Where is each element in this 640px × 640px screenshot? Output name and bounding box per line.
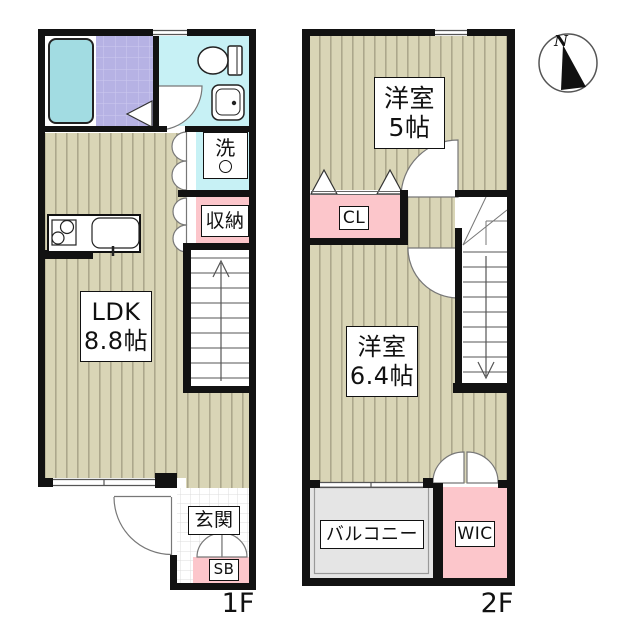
kitchen-sink-icon	[92, 218, 139, 248]
label-wic: WIC	[455, 521, 495, 547]
ldk-size: 8.8帖	[84, 327, 148, 355]
label-storage: 収納	[201, 205, 249, 237]
label-closet: CL	[339, 206, 369, 230]
compass-north-label: N	[548, 31, 574, 51]
staircase-2f	[463, 197, 507, 378]
bedroom5-name: 洋室	[384, 84, 435, 114]
floor2-label: 2F	[476, 587, 518, 619]
label-entrance: 玄関	[188, 506, 240, 535]
label-ldk: LDK 8.8帖	[80, 291, 152, 362]
bedroom64-name: 洋室	[358, 333, 407, 361]
bathtub-icon	[49, 39, 93, 123]
hall-floor	[408, 197, 455, 247]
bedroom64-size: 6.4帖	[350, 362, 414, 390]
floor1-label: 1F	[217, 587, 259, 619]
bedroom5-size: 5帖	[389, 113, 431, 143]
washer-circle-icon	[219, 160, 232, 173]
label-bedroom5: 洋室 5帖	[374, 77, 445, 149]
staircase-1f	[191, 258, 249, 381]
ldk-name: LDK	[91, 298, 140, 326]
ldk-floor-lower	[186, 393, 249, 488]
toilet-tank-icon	[228, 46, 242, 75]
label-laundry: 洗	[203, 132, 248, 179]
label-balcony: バルコニー	[320, 520, 424, 549]
label-shoebox: SB	[209, 559, 239, 581]
entrance-door-swing	[114, 497, 172, 556]
toilet-bowl-icon	[198, 47, 228, 74]
label-bedroom64: 洋室 6.4帖	[346, 326, 418, 397]
winder-step-line	[463, 197, 486, 245]
